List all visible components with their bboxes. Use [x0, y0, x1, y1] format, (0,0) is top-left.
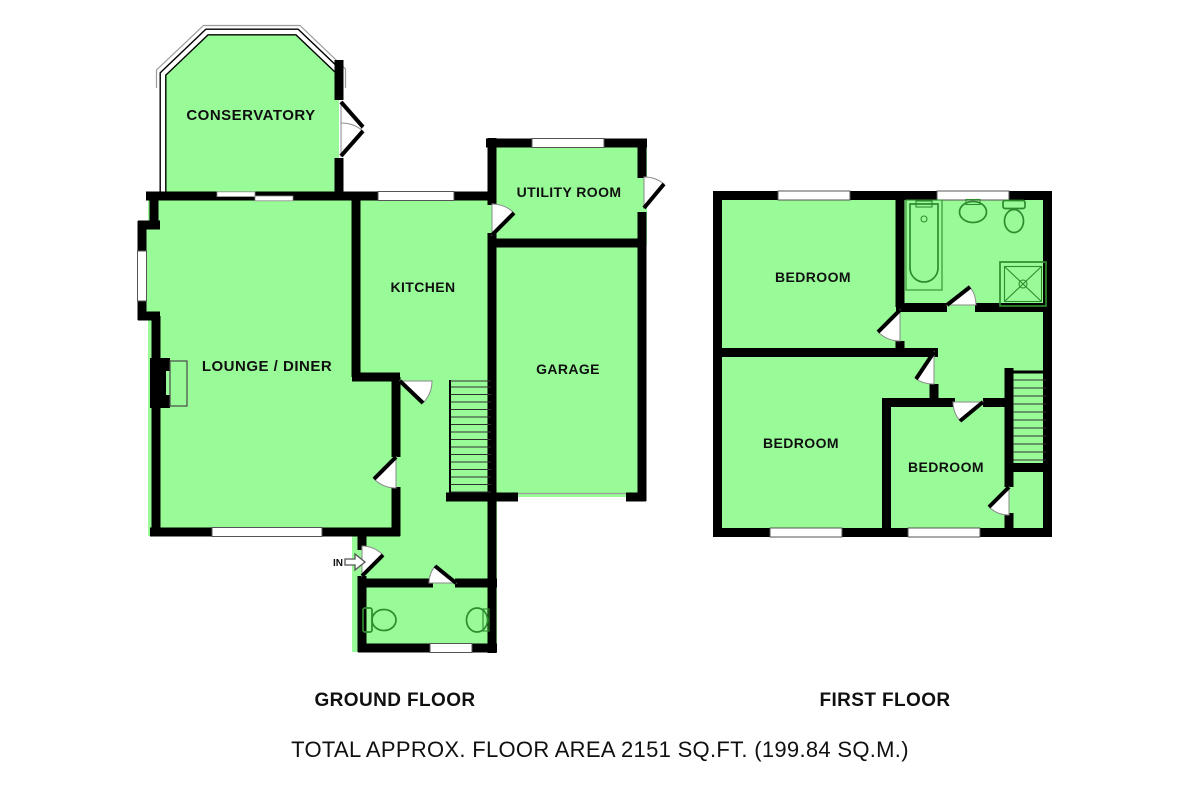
ground-floor-room-fills: [138, 32, 647, 652]
utility-room-label: UTILITY ROOM: [517, 184, 622, 200]
bedroom-top-label: BEDROOM: [775, 269, 851, 285]
kitchen-label: KITCHEN: [390, 279, 455, 295]
window: [770, 528, 842, 537]
ground-floor-title: GROUND FLOOR: [314, 690, 475, 711]
lounge-diner-label: LOUNGE / DINER: [202, 358, 332, 375]
first-floor-title: FIRST FLOOR: [819, 690, 950, 711]
bedroom-bottom-left-label: BEDROOM: [763, 435, 839, 451]
window: [212, 528, 322, 537]
window: [430, 644, 472, 653]
floorplan-page: CONSERVATORY UTILITY ROOM KITCHEN LOUNGE…: [0, 0, 1200, 800]
window: [378, 192, 454, 201]
total-area-label: TOTAL APPROX. FLOOR AREA 2151 SQ.FT. (19…: [291, 737, 909, 762]
floorplan-drawing: CONSERVATORY UTILITY ROOM KITCHEN LOUNGE…: [0, 0, 1200, 800]
window: [532, 139, 604, 148]
window: [778, 191, 850, 200]
garage-label: GARAGE: [536, 361, 600, 377]
window: [138, 251, 147, 301]
footer: GROUND FLOOR FIRST FLOOR TOTAL APPROX. F…: [291, 690, 950, 762]
first-floor-plan: BEDROOM BEDROOM BEDROOM: [713, 191, 1052, 537]
window: [937, 191, 1009, 200]
conservatory-label: CONSERVATORY: [186, 107, 315, 124]
window: [255, 196, 293, 201]
ground-floor-plan: CONSERVATORY UTILITY ROOM KITCHEN LOUNGE…: [138, 26, 665, 654]
window: [217, 192, 255, 197]
entrance-in-label: IN: [333, 558, 343, 569]
window: [908, 528, 980, 537]
bedroom-bottom-right-label: BEDROOM: [908, 459, 984, 475]
